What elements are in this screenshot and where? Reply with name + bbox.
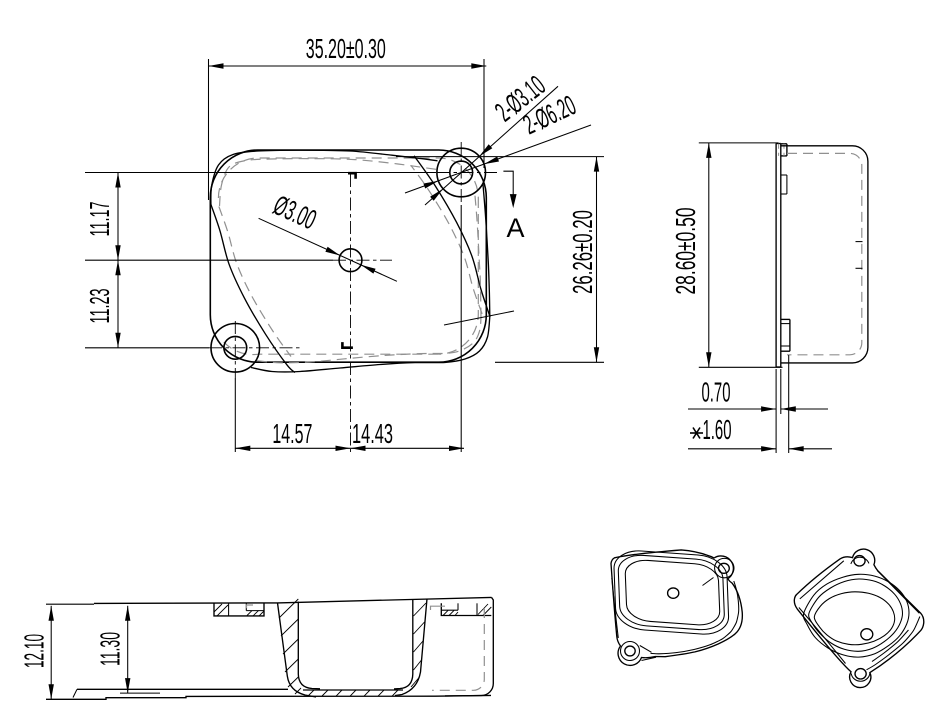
svg-text:A: A (506, 213, 524, 243)
svg-text:14.57: 14.57 (272, 418, 312, 449)
svg-text:12.10: 12.10 (19, 634, 50, 668)
svg-text:28.60±0.50: 28.60±0.50 (670, 208, 701, 295)
svg-text:1.60: 1.60 (703, 414, 732, 445)
svg-text:14.43: 14.43 (352, 418, 393, 449)
svg-text:11.23: 11.23 (84, 289, 115, 324)
svg-text:11.30: 11.30 (95, 632, 126, 666)
svg-text:11.17: 11.17 (84, 202, 115, 237)
svg-text:26.26±0.20: 26.26±0.20 (567, 210, 598, 294)
svg-text:35.20±0.30: 35.20±0.30 (306, 33, 386, 64)
svg-text:0.70: 0.70 (702, 377, 731, 408)
